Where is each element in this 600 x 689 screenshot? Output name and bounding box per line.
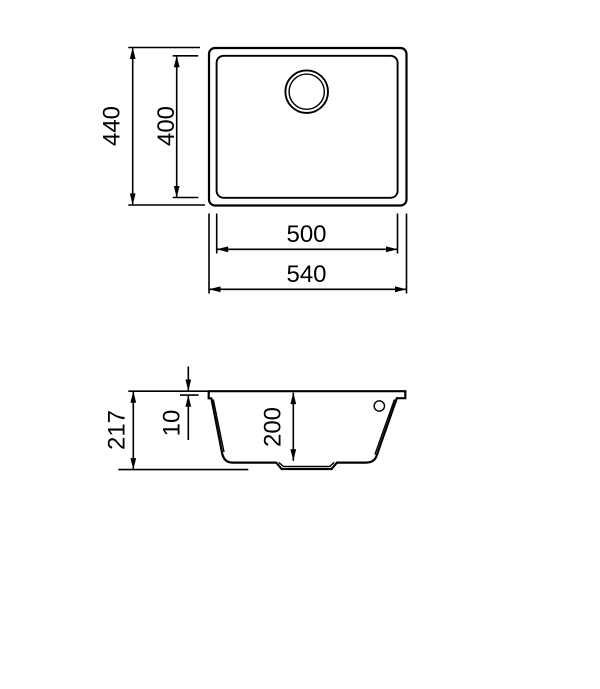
dim-label-bowl-height: 400 <box>153 106 180 146</box>
dim-label-rim-height: 10 <box>159 410 186 437</box>
dim-label-overall-depth: 217 <box>104 410 131 450</box>
left-wall-inner-line <box>213 400 224 453</box>
sink-dimension-drawing: 440 400 500 540 217 10 20 <box>0 0 600 689</box>
drain-outer-circle <box>285 70 328 113</box>
dim-label-overall-height: 440 <box>99 106 126 146</box>
technical-drawing-canvas: 440 400 500 540 217 10 20 <box>0 0 600 689</box>
drain-recess-inner-line <box>279 462 334 466</box>
dim-label-overall-width: 540 <box>286 261 326 288</box>
sink-bowl-edge-outline <box>217 56 398 198</box>
top-view: 440 400 500 540 <box>99 48 407 294</box>
dim-label-bowl-width: 500 <box>286 221 326 248</box>
dim-label-bowl-depth: 200 <box>260 407 287 447</box>
overflow-hole-circle <box>374 401 384 411</box>
drain-inner-circle <box>289 74 324 109</box>
side-section-view: 217 10 200 <box>104 367 406 470</box>
sink-outer-rim-outline <box>209 48 407 206</box>
